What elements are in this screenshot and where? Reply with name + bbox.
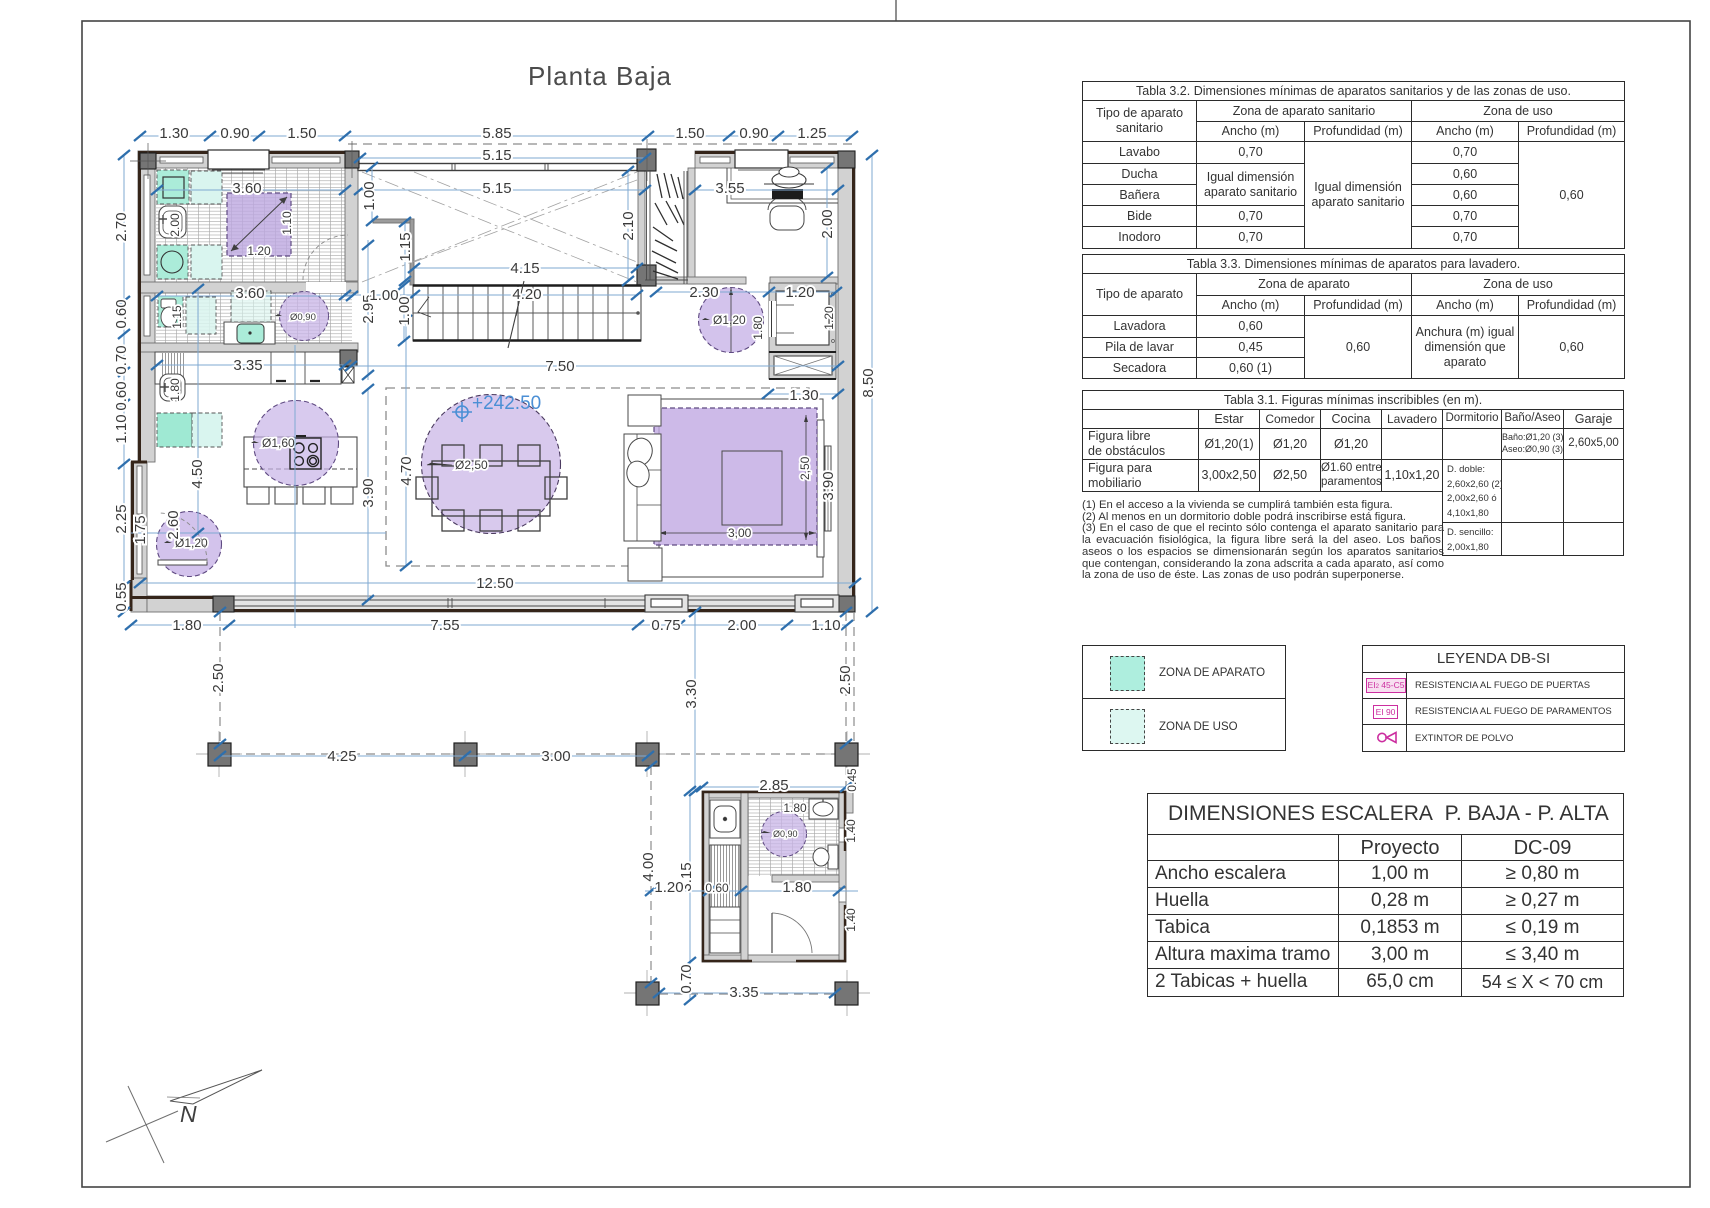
svg-text:1.80: 1.80 bbox=[172, 617, 201, 634]
svg-text:2.00: 2.00 bbox=[727, 617, 756, 634]
svg-text:1.75: 1.75 bbox=[132, 515, 149, 544]
svg-text:12.50: 12.50 bbox=[476, 575, 514, 592]
svg-text:4.20: 4.20 bbox=[512, 286, 541, 303]
svg-text:1.80: 1.80 bbox=[751, 316, 765, 340]
svg-text:7.55: 7.55 bbox=[430, 617, 459, 634]
svg-text:4.50: 4.50 bbox=[189, 459, 206, 488]
svg-text:2.70: 2.70 bbox=[113, 212, 130, 241]
svg-text:2.60: 2.60 bbox=[165, 510, 182, 539]
svg-text:0.60: 0.60 bbox=[705, 881, 729, 895]
svg-text:3.55: 3.55 bbox=[715, 180, 744, 197]
svg-text:8.50: 8.50 bbox=[860, 368, 877, 397]
svg-text:3,00: 3,00 bbox=[728, 526, 752, 540]
svg-text:4.15: 4.15 bbox=[510, 260, 539, 277]
svg-text:Planta Baja: Planta Baja bbox=[528, 61, 672, 91]
svg-text:0.70: 0.70 bbox=[113, 345, 130, 374]
svg-text:0.70: 0.70 bbox=[678, 964, 695, 993]
svg-text:Ø2,50: Ø2,50 bbox=[455, 458, 488, 472]
svg-text:2.50: 2.50 bbox=[837, 665, 854, 694]
svg-text:5.15: 5.15 bbox=[482, 147, 511, 164]
svg-text:0.60: 0.60 bbox=[113, 299, 130, 328]
svg-text:5.85: 5.85 bbox=[482, 125, 511, 142]
svg-text:2.30: 2.30 bbox=[689, 284, 718, 301]
svg-text:+242.50: +242.50 bbox=[472, 393, 541, 414]
svg-text:1.40: 1.40 bbox=[844, 908, 858, 932]
svg-text:1.00: 1.00 bbox=[369, 287, 398, 304]
svg-text:1.20: 1.20 bbox=[654, 879, 683, 896]
svg-text:Ø1,60: Ø1,60 bbox=[262, 436, 295, 450]
svg-text:0.45: 0.45 bbox=[845, 768, 859, 792]
svg-text:1.20: 1.20 bbox=[822, 306, 836, 330]
svg-text:1.20: 1.20 bbox=[785, 284, 814, 301]
svg-text:1.15: 1.15 bbox=[170, 305, 184, 329]
svg-text:1.20: 1.20 bbox=[247, 244, 271, 258]
svg-text:1.80: 1.80 bbox=[168, 378, 182, 402]
svg-text:2.10: 2.10 bbox=[620, 211, 637, 240]
svg-text:1.10: 1.10 bbox=[280, 211, 294, 235]
svg-text:Ø0,90: Ø0,90 bbox=[290, 312, 316, 323]
svg-text:4.70: 4.70 bbox=[398, 456, 415, 485]
svg-text:3.30: 3.30 bbox=[683, 679, 700, 708]
svg-text:1.25: 1.25 bbox=[797, 125, 826, 142]
svg-text:2.00: 2.00 bbox=[168, 213, 182, 237]
svg-text:1.30: 1.30 bbox=[159, 125, 188, 142]
svg-text:3.60: 3.60 bbox=[235, 285, 264, 302]
svg-text:1.15: 1.15 bbox=[397, 232, 414, 261]
svg-text:0.60: 0.60 bbox=[113, 381, 130, 410]
svg-text:2.25: 2.25 bbox=[113, 504, 130, 533]
svg-text:1.80: 1.80 bbox=[782, 879, 811, 896]
svg-text:1.80: 1.80 bbox=[783, 801, 807, 815]
svg-text:7.50: 7.50 bbox=[545, 358, 574, 375]
svg-text:3.35: 3.35 bbox=[233, 357, 262, 374]
svg-text:0.90: 0.90 bbox=[739, 125, 768, 142]
svg-text:3.35: 3.35 bbox=[729, 984, 758, 1001]
svg-text:0.90: 0.90 bbox=[220, 125, 249, 142]
svg-text:1.50: 1.50 bbox=[287, 125, 316, 142]
svg-text:Ø0,90: Ø0,90 bbox=[773, 829, 798, 839]
svg-text:1.10: 1.10 bbox=[811, 617, 840, 634]
svg-text:N: N bbox=[180, 1101, 197, 1127]
svg-text:1.40: 1.40 bbox=[844, 819, 858, 843]
svg-text:2,50: 2,50 bbox=[798, 456, 812, 480]
svg-text:4.25: 4.25 bbox=[327, 748, 356, 765]
svg-text:2.50: 2.50 bbox=[210, 663, 227, 692]
svg-text:3.00: 3.00 bbox=[541, 748, 570, 765]
svg-text:0.55: 0.55 bbox=[113, 582, 130, 611]
svg-text:0.75: 0.75 bbox=[651, 617, 680, 634]
svg-text:3.90: 3.90 bbox=[820, 471, 837, 500]
svg-text:1.00: 1.00 bbox=[361, 181, 378, 210]
svg-text:3.60: 3.60 bbox=[232, 180, 261, 197]
svg-text:2.00: 2.00 bbox=[819, 209, 836, 238]
svg-text:1.30: 1.30 bbox=[789, 387, 818, 404]
svg-text:3.90: 3.90 bbox=[360, 478, 377, 507]
svg-text:4.00: 4.00 bbox=[640, 852, 657, 881]
svg-text:5.15: 5.15 bbox=[482, 180, 511, 197]
svg-text:Ø1,20: Ø1,20 bbox=[713, 313, 746, 327]
svg-text:1.50: 1.50 bbox=[675, 125, 704, 142]
svg-text:1.10: 1.10 bbox=[113, 414, 130, 443]
svg-text:2.85: 2.85 bbox=[759, 777, 788, 794]
